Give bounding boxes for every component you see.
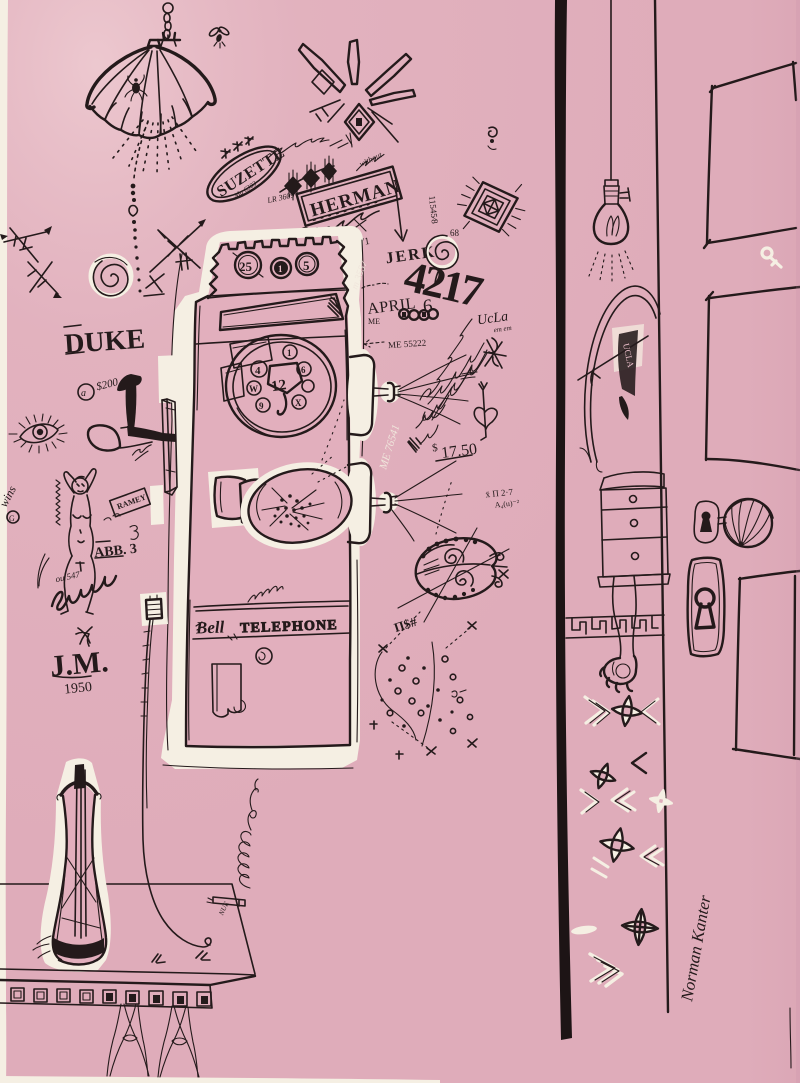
svg-text:W: W <box>249 384 258 394</box>
svg-text:X: X <box>295 398 302 408</box>
svg-text:G: G <box>9 514 15 523</box>
svg-text:a: a <box>81 388 86 399</box>
svg-text:25: 25 <box>239 259 253 274</box>
svg-text:DUKE: DUKE <box>63 324 146 361</box>
svg-text:Bell: Bell <box>195 617 225 637</box>
svg-text:9: 9 <box>259 401 264 411</box>
svg-text:68: 68 <box>450 228 460 238</box>
svg-text:1: 1 <box>287 348 292 358</box>
svg-text:6: 6 <box>301 365 306 375</box>
svg-text:1: 1 <box>278 264 283 274</box>
svg-text:12: 12 <box>270 377 287 395</box>
svg-text:1950: 1950 <box>63 680 92 698</box>
svg-text:ME: ME <box>368 317 380 326</box>
svg-text:4: 4 <box>255 365 261 377</box>
svg-text:5: 5 <box>303 258 310 273</box>
